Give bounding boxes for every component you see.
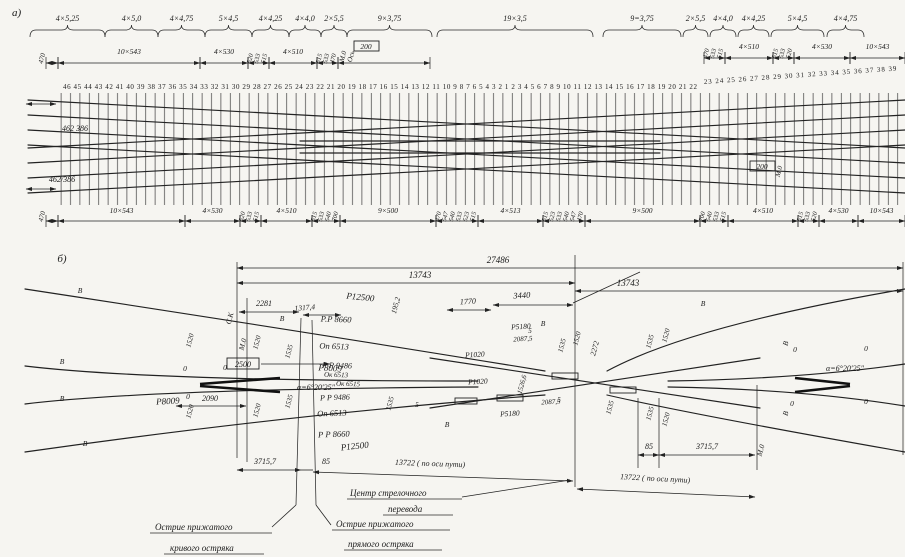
label-n2281: 2281: [256, 299, 272, 308]
label-o: 0: [864, 397, 868, 406]
brace-9: [603, 25, 681, 37]
label-s510: 4×510: [276, 206, 296, 215]
label-joint_bot: 462/386: [49, 175, 75, 184]
label-v: В: [78, 286, 83, 295]
label-v: В: [60, 394, 65, 403]
label-n470: 470: [576, 210, 585, 222]
label-n2500: 2500: [235, 360, 251, 369]
label-v: В: [60, 357, 65, 366]
label-7: 9×3,75: [378, 14, 401, 23]
label-op6513b: Оп 6513: [317, 407, 347, 418]
tie-band: [58, 93, 905, 205]
technical-drawing-sheet: 46 45 44 43 42 41 40 39 38 37 36 35 34 3…: [0, 0, 905, 557]
label-g1535: 1535: [604, 399, 615, 415]
label-s530: 4×530: [812, 42, 832, 51]
label-s543: 10×543: [870, 206, 894, 215]
label-n1770: 1770: [460, 297, 476, 307]
label-v: В: [781, 340, 791, 347]
brace-8: [437, 25, 593, 37]
label-n515: 515: [469, 210, 478, 222]
label-n515: 515: [716, 47, 725, 59]
label-v: В: [83, 439, 88, 448]
label-v: В: [701, 299, 706, 308]
brace-5: [289, 25, 321, 37]
label-n3440: 3440: [512, 290, 531, 301]
label-o: 0: [223, 363, 227, 372]
tie-numbers-main: 46 45 44 43 42 41 40 39 38 37 36 35 34 3…: [63, 83, 697, 91]
label-o: 0: [793, 345, 797, 354]
label-2: 4×4,75: [170, 14, 193, 23]
brace-13: [771, 25, 824, 37]
brace-10: [683, 25, 708, 37]
label-g1535: 1535: [644, 333, 655, 349]
label-n520: 520: [810, 210, 819, 222]
label-n520: 520: [785, 47, 794, 59]
label-n13722r: 13722 ( по оси пути): [620, 472, 691, 485]
label-n2090: 2090: [202, 394, 218, 403]
railway-crossing-drawing: 46 45 44 43 42 41 40 39 38 37 36 35 34 3…: [0, 0, 905, 557]
brace-2: [158, 25, 205, 37]
label-five: 5: [528, 327, 532, 335]
label-s530: 4×530: [214, 47, 234, 56]
label-right: α=6°20′25″: [826, 364, 865, 373]
label-n515: 515: [252, 210, 261, 222]
label-s500: 9×500: [632, 206, 652, 215]
label-g1520: 1520: [660, 411, 671, 427]
label-12: 4×4,25: [742, 14, 765, 23]
label-n200: 200: [756, 162, 768, 171]
label-g1535: 1535: [556, 337, 567, 353]
label-n200: 200: [360, 42, 372, 51]
label-n3715r: 3715,7: [695, 442, 719, 451]
brace-6: [321, 25, 347, 37]
label-v: В: [445, 420, 450, 429]
label-n3715l: 3715,7: [253, 457, 277, 466]
label-n1317: 1317,4: [294, 302, 315, 312]
label-n1526: 1526,6: [516, 374, 529, 395]
brace-12: [738, 25, 769, 37]
label-6: 2×5,5: [324, 14, 343, 23]
label-n85l: 85: [322, 457, 330, 466]
label-n700: 700: [331, 210, 340, 222]
label-joint_top: 462 386: [62, 124, 88, 133]
label-13: 5×4,5: [788, 14, 807, 23]
label-s543: 10×543: [110, 206, 134, 215]
label-r12500a: Р12500: [345, 290, 375, 303]
label-o: 0: [186, 392, 190, 401]
label-right: 13743: [617, 278, 640, 288]
label-g1535: 1535: [644, 405, 655, 421]
label-v: В: [280, 314, 285, 323]
label-v: В: [541, 319, 546, 328]
label-n13722l: 13722 ( по оси пути): [395, 458, 466, 469]
label-pp9486a: Р Р 9486: [321, 360, 352, 370]
label-pp8660b: Р Р 8660: [317, 428, 351, 439]
label-part_b_label: б): [57, 253, 67, 265]
brace-11: [710, 25, 736, 37]
label-n470: 470: [329, 52, 338, 64]
label-g1535: 1535: [283, 393, 294, 409]
label-1: 4×5,0: [122, 14, 141, 23]
label-n195: 195,2: [389, 296, 402, 315]
label-s543: 10×543: [866, 42, 890, 51]
label-o: 0: [864, 344, 868, 353]
label-o: 0: [790, 399, 794, 408]
label-left: α=6°20′25″: [297, 383, 336, 392]
label-g1535: 1535: [283, 343, 294, 359]
label-rr8660a: Р.Р 8660: [320, 313, 353, 324]
label-overall: 27486: [487, 255, 510, 265]
label-five: 5: [557, 396, 561, 404]
label-g1535: 1535: [384, 395, 395, 411]
label-0: 4×5,25: [56, 14, 79, 23]
label-8: 19×3,5: [503, 14, 526, 23]
brace-0: [30, 25, 105, 37]
brace-7: [347, 25, 432, 37]
label-g1520: 1520: [184, 332, 195, 348]
label-n515: 515: [719, 210, 728, 222]
spacing-group-braces: [30, 25, 864, 37]
label-p1020a: Р1020: [464, 349, 485, 359]
label-n2087a: 2087,5: [513, 334, 533, 343]
label-ck: С.К: [224, 310, 236, 325]
label-l1: Острие прижатого: [155, 522, 233, 532]
label-ok6515: Ок 6515: [336, 380, 361, 389]
label-3: 5×4,5: [219, 14, 238, 23]
label-n2272: 2272: [588, 340, 601, 357]
label-g1520: 1520: [571, 330, 582, 346]
label-c1: Центр стрелочного: [349, 488, 427, 498]
label-r12500b: Р12500: [339, 440, 369, 453]
label-g1520: 1520: [251, 334, 262, 350]
label-5: 4×4,0: [295, 14, 314, 23]
label-p1020b: Р1020: [467, 376, 488, 386]
label-s530: 4×530: [202, 206, 222, 215]
label-g1520: 1520: [660, 327, 671, 343]
label-o: 0: [183, 364, 187, 373]
label-10: 2×5,5: [686, 14, 705, 23]
label-r8009b: Р8009: [155, 395, 180, 406]
label-op6513a: Оп 6513: [319, 340, 349, 351]
label-axis: Ось: [346, 50, 357, 63]
label-s500: 9×500: [378, 206, 398, 215]
label-m0r: М.0: [754, 443, 766, 458]
part-b-rails: [25, 289, 905, 452]
label-g1520: 1520: [251, 402, 262, 418]
label-five: 5: [415, 401, 419, 409]
label-9: 9=3,75: [630, 14, 653, 23]
label-l2: кривого остряка: [170, 543, 234, 553]
brace-3: [205, 25, 252, 37]
label-part_a_label: а): [12, 7, 22, 19]
label-pp9486b: Р Р 9486: [319, 392, 350, 402]
label-r1: Острие прижатого: [336, 519, 414, 529]
label-c2: перевода: [388, 504, 423, 514]
label-s510: 4×510: [753, 206, 773, 215]
label-s530: 4×530: [828, 206, 848, 215]
label-v: В: [781, 410, 791, 417]
label-n515: 515: [260, 52, 269, 64]
label-11: 4×4,0: [713, 14, 732, 23]
brace-4: [252, 25, 289, 37]
label-s510: 4×510: [283, 47, 303, 56]
label-14: 4×4,75: [834, 14, 857, 23]
label-ok6513: Ок 6513: [324, 371, 349, 380]
label-s510: 4×510: [739, 42, 759, 51]
label-s543: 10×543: [117, 47, 141, 56]
label-r2: прямого остряка: [348, 539, 414, 549]
tie-numbers-right: 23 24 25 26 27 28 29 30 31 32 33 34 35 3…: [704, 65, 898, 86]
label-p5180b: Р5180: [499, 408, 520, 418]
label-left: 13743: [409, 270, 432, 280]
label-4: 4×4,25: [259, 14, 282, 23]
label-n85r: 85: [645, 442, 653, 451]
brace-14: [827, 25, 864, 37]
label-s513: 4×513: [500, 206, 520, 215]
brace-1: [105, 25, 158, 37]
